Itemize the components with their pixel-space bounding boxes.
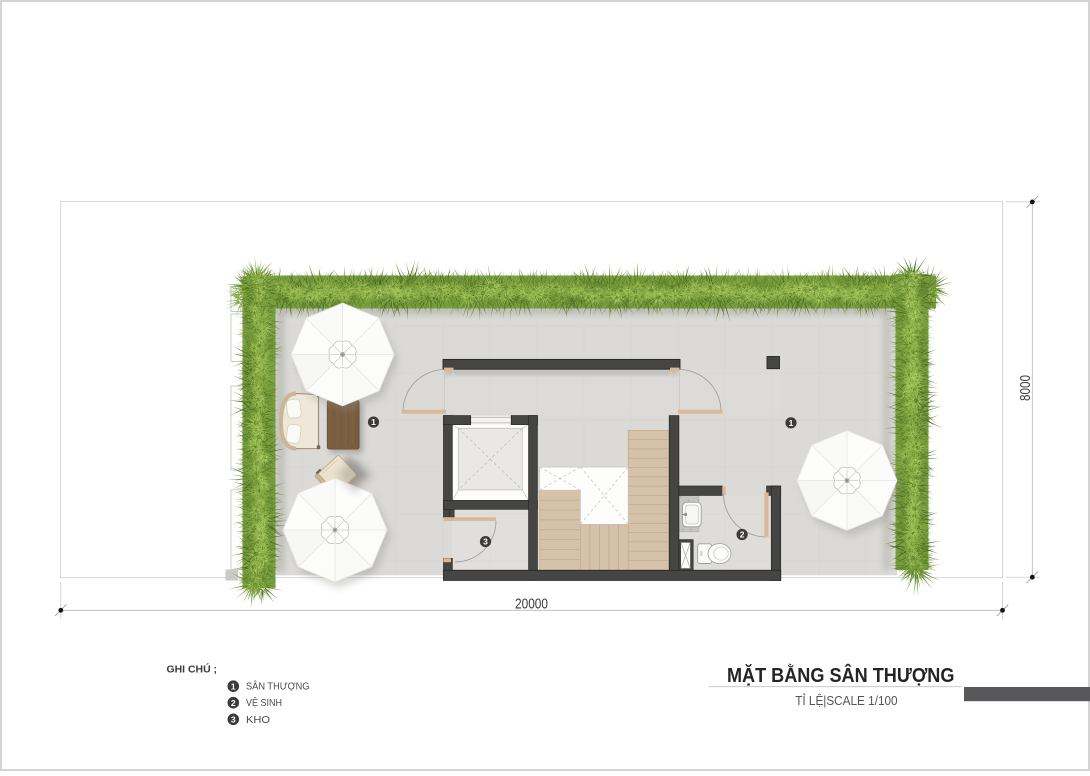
svg-text:3: 3 bbox=[231, 715, 236, 725]
svg-text:1: 1 bbox=[371, 417, 376, 427]
svg-text:8000: 8000 bbox=[1018, 375, 1034, 401]
svg-text:GHI CHÚ ;: GHI CHÚ ; bbox=[167, 663, 218, 676]
svg-text:2: 2 bbox=[231, 698, 236, 708]
svg-text:TỈ LỆ|SCALE 1/100: TỈ LỆ|SCALE 1/100 bbox=[795, 693, 897, 708]
svg-text:2: 2 bbox=[740, 530, 745, 540]
svg-text:VỆ SINH: VỆ SINH bbox=[246, 696, 282, 709]
svg-text:3: 3 bbox=[483, 537, 488, 547]
svg-text:SÂN THƯỢNG: SÂN THƯỢNG bbox=[246, 680, 310, 693]
svg-text:1: 1 bbox=[231, 681, 236, 691]
svg-text:1: 1 bbox=[789, 418, 794, 428]
svg-text:KHO: KHO bbox=[246, 715, 270, 726]
svg-text:20000: 20000 bbox=[515, 596, 548, 612]
svg-text:MẶT BẰNG SÂN THƯỢNG: MẶT BẰNG SÂN THƯỢNG bbox=[727, 663, 955, 687]
